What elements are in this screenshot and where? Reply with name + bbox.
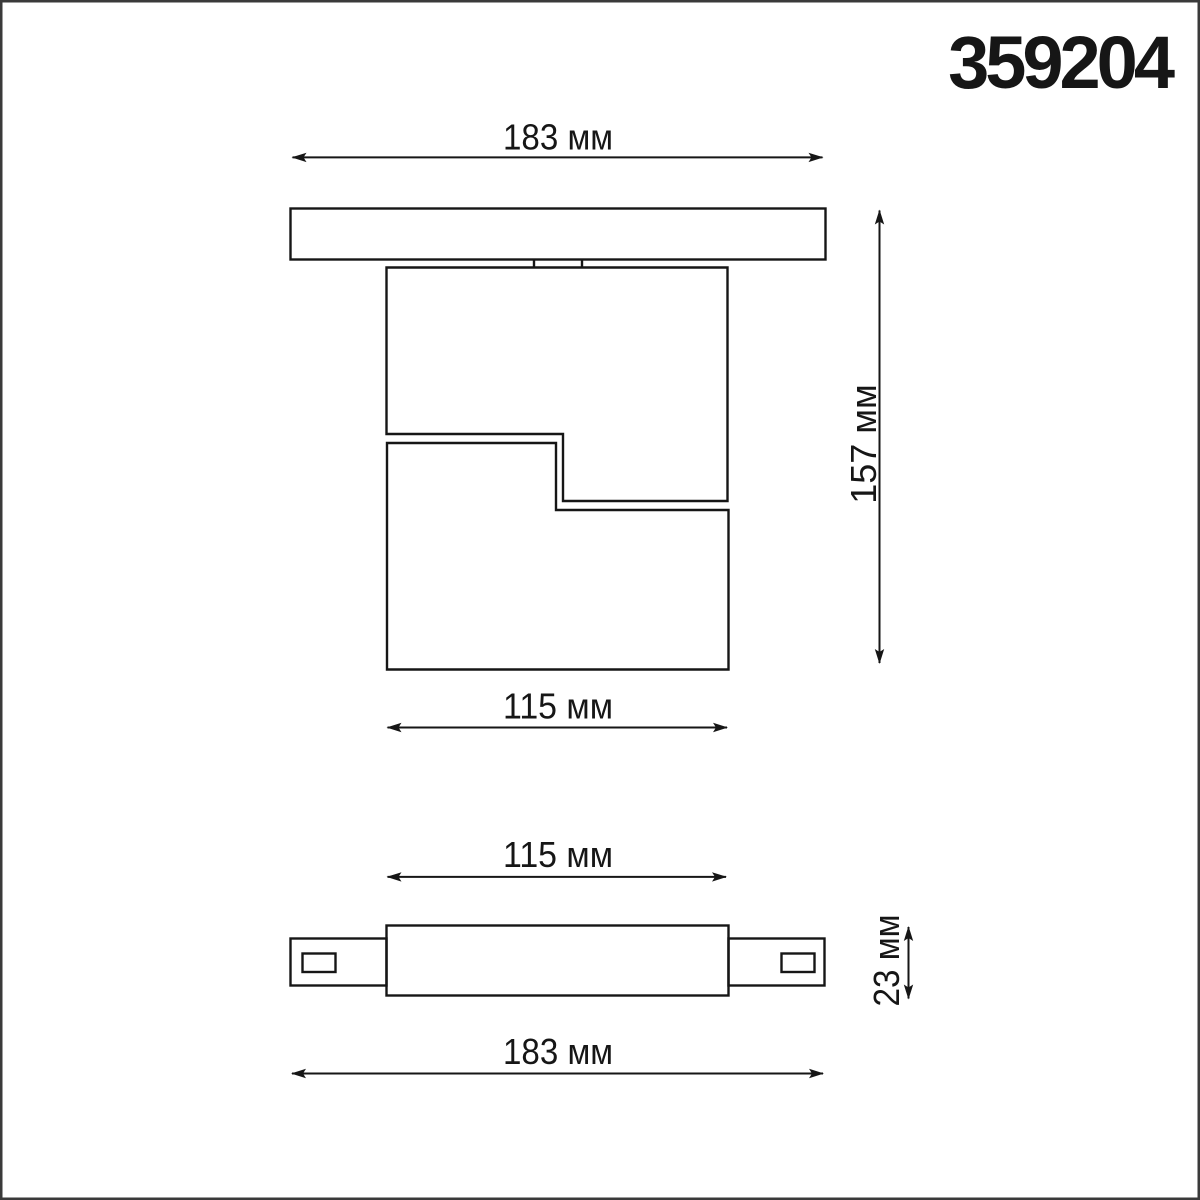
svg-text:359204: 359204 [948, 21, 1175, 104]
svg-text:157 мм: 157 мм [843, 384, 884, 504]
svg-text:183 мм: 183 мм [503, 116, 613, 157]
svg-text:115 мм: 115 мм [503, 686, 613, 727]
svg-text:115 мм: 115 мм [503, 834, 613, 875]
svg-text:183 мм: 183 мм [503, 1031, 613, 1072]
svg-text:23 мм: 23 мм [866, 915, 907, 1007]
